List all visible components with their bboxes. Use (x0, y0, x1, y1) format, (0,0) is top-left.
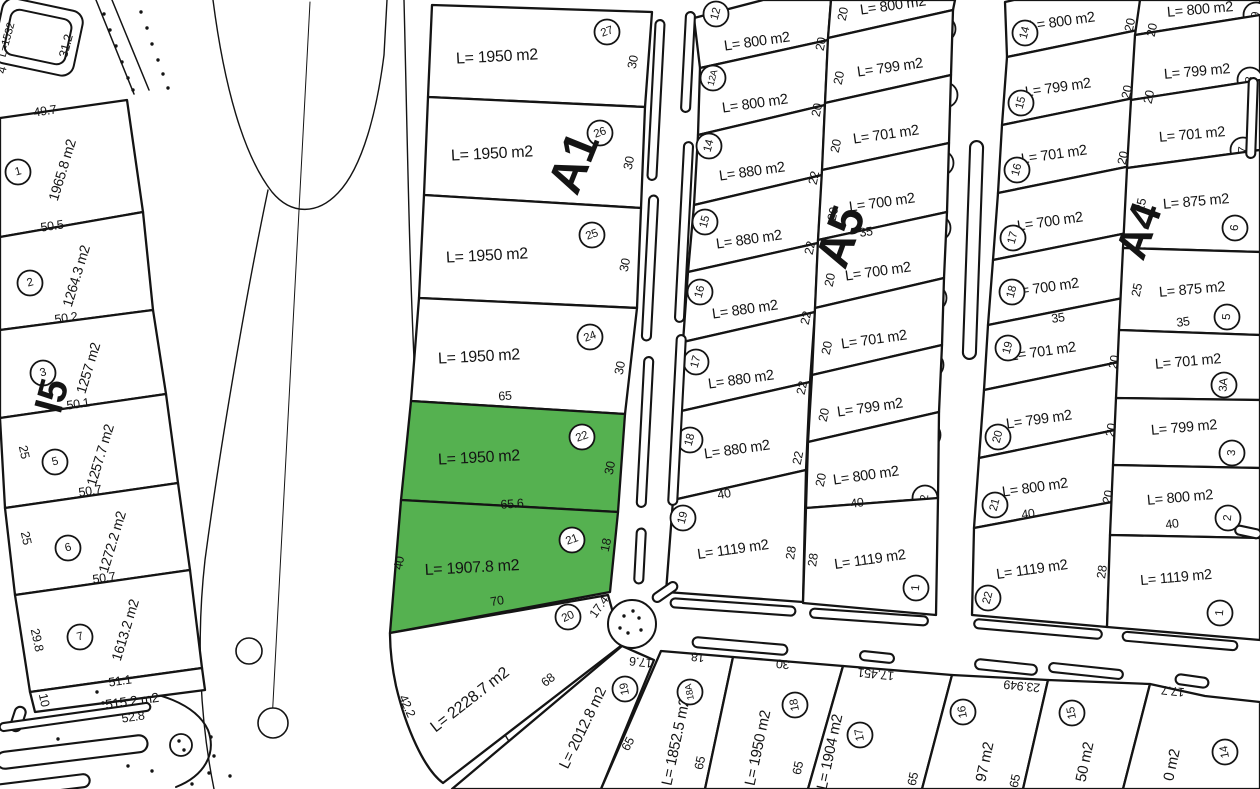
dimension-label: 40 (849, 495, 864, 511)
parcel-number: 1 (910, 584, 922, 591)
parcel-number: 5 (1221, 313, 1233, 320)
texture-dot (156, 58, 159, 61)
texture-dot (150, 42, 153, 45)
texture-dot (126, 764, 129, 767)
dimension-label: 28 (805, 552, 821, 567)
texture-dot (228, 774, 231, 777)
texture-dot (131, 88, 134, 91)
texture-dot (126, 76, 129, 79)
texture-dot (177, 739, 180, 742)
dimension-label: 40 (1020, 506, 1035, 522)
texture-dot (637, 616, 640, 619)
texture-dot (150, 769, 153, 772)
texture-dot (626, 631, 629, 634)
survey-plan-canvas: 1965.8 m211264.3 m221257 m231257.7 m2512… (0, 0, 1260, 789)
parcel-group-1: L= 1119 m21 (1107, 535, 1260, 640)
texture-dot (166, 86, 169, 89)
dimension-label: 30 (775, 656, 790, 671)
texture-dot (207, 771, 210, 774)
parcel-number: 16 (956, 705, 970, 719)
dimension-label: 65.6 (500, 496, 524, 512)
parcel-number: 6 (1229, 224, 1241, 231)
dimension-label: 35 (1050, 310, 1065, 326)
parcel-group-25: L= 1950 m225 (419, 195, 641, 308)
road-curb (634, 528, 646, 583)
texture-dot (101, 701, 104, 704)
parcel-group-3A: L= 701 m23A (1116, 330, 1260, 400)
texture-dot (190, 782, 193, 785)
dimension-label: 40 (716, 486, 732, 502)
texture-dot (631, 609, 634, 612)
texture-dot (102, 12, 105, 15)
parcel-group-22: L= 1950 m222 (401, 401, 625, 512)
texture-dot (145, 26, 148, 29)
parcel-number: 18 (788, 698, 802, 712)
survey-plan: 1965.8 m211264.3 m221257 m231257.7 m2512… (0, 0, 1260, 789)
dimension-label: 17.6 (628, 654, 653, 670)
parcel-group-26: L= 1950 m226 (424, 97, 645, 208)
texture-dot (108, 28, 111, 31)
dimension-label: 65 (498, 389, 513, 404)
dimension-label: 28 (783, 545, 799, 560)
texture-dot (212, 754, 215, 757)
dimension-label: 40 (1164, 516, 1179, 532)
roundabout-small (170, 734, 192, 756)
parcel-group-1: L= 1119 m21 (803, 498, 938, 615)
dimension-label: 70 (489, 593, 505, 609)
parcel-group-3: L= 799 m23 (1113, 398, 1260, 468)
parcel-number: 19 (618, 682, 632, 696)
texture-dot (618, 626, 621, 629)
parcel-group-24: L= 1950 m224 (411, 298, 637, 414)
dimension-label: 17.7 (1160, 683, 1185, 699)
texture-dot (161, 72, 164, 75)
parcel-number: 3A (1217, 377, 1230, 392)
texture-dot (209, 735, 212, 738)
dimension-label: 28 (1094, 564, 1110, 579)
texture-dot (120, 60, 123, 63)
parcel-number: 2 (1222, 514, 1234, 521)
texture-dot (139, 10, 142, 13)
pond-2 (258, 708, 288, 738)
texture-dot (95, 690, 98, 693)
parcel-1 (1107, 535, 1260, 640)
dimension-label: 40 (391, 555, 407, 571)
road-curb (1246, 78, 1258, 158)
parcel-number: 15 (1065, 706, 1079, 720)
parcel-group-27: L= 1950 m227 (428, 5, 652, 107)
texture-dot (182, 748, 185, 751)
parcel-number: 17 (853, 728, 867, 742)
texture-dot (56, 737, 59, 740)
parcel-number: 3 (1226, 449, 1238, 456)
texture-dot (639, 628, 642, 631)
dimension-label: 18 (690, 649, 705, 664)
dimension-label: 35 (1175, 314, 1190, 330)
roundabout (608, 600, 656, 648)
texture-dot (622, 614, 625, 617)
pond-1 (236, 638, 262, 664)
parcel-number: 1 (1214, 609, 1226, 616)
texture-dot (114, 44, 117, 47)
